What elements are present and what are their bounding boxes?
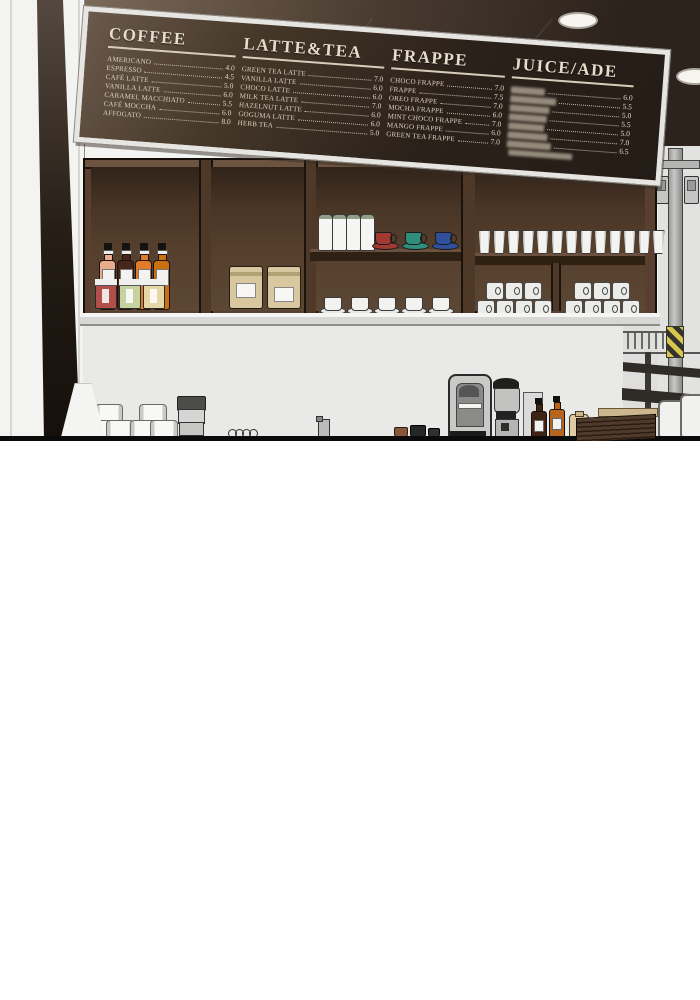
bottle-cap — [140, 243, 148, 250]
paper-cup — [580, 230, 593, 254]
menu-section-coffee: COFFEEAMERICANO4.0ESPRESSO4.5CAFÉ LATTE5… — [101, 24, 237, 148]
mug — [574, 282, 592, 300]
cup-body — [378, 297, 396, 311]
menu-section-title: LATTE&TEA — [243, 34, 386, 65]
cup-handle — [450, 234, 457, 243]
menu-section-frappe: FRAPPECHOCO FRAPPE7.0FRAPPE7.5OREO FRAPP… — [384, 45, 506, 168]
pole-box — [684, 176, 699, 204]
paper-cup — [638, 230, 651, 254]
blank-area — [0, 441, 700, 1000]
coffee-grinder — [492, 378, 522, 437]
hazard-stripes — [666, 326, 684, 358]
cabinet-section-mugs — [475, 167, 645, 311]
tea-cup — [432, 230, 458, 250]
ceiling-light — [676, 68, 700, 85]
street-fence — [620, 331, 666, 349]
wall-panel-line — [10, 0, 12, 441]
paper-cup — [551, 230, 564, 254]
pitcher-stack — [176, 396, 206, 437]
bottle-label — [552, 418, 562, 430]
cup-handle — [390, 234, 397, 243]
menu-dotted-leader — [276, 127, 367, 135]
bottle-cap — [122, 243, 130, 250]
milk-bottle-row — [318, 214, 374, 251]
mug — [593, 282, 611, 300]
mug-row — [486, 282, 552, 300]
street-curb-line — [618, 352, 700, 354]
mug — [505, 282, 523, 300]
menu-section-juice-ade: JUICE/ADE6.05.55.05.55.07.06.5 — [505, 54, 635, 178]
counter-syrup-bottle — [549, 396, 564, 437]
cabinet-divider — [551, 263, 561, 311]
coffee-bag-row — [229, 266, 301, 309]
tea-cup — [402, 230, 428, 250]
paper-cup — [493, 230, 506, 254]
cafe-scene: COFFEEAMERICANO4.0ESPRESSO4.5CAFÉ LATTE5… — [0, 0, 700, 441]
paper-cup — [609, 230, 622, 254]
paper-cup — [652, 230, 665, 254]
mug — [486, 282, 504, 300]
paper-cup — [507, 230, 520, 254]
cabinet-section-bags — [211, 167, 304, 311]
cup-body — [405, 297, 423, 311]
coffee-bag — [267, 266, 301, 309]
cup-handle — [420, 234, 427, 243]
cup-body — [351, 297, 369, 311]
menu-dotted-leader — [458, 140, 488, 143]
menu-item-price: 7.0 — [490, 137, 500, 147]
coffee-bag — [229, 266, 263, 309]
ceiling-light — [558, 12, 598, 29]
cup-body — [432, 297, 450, 311]
machine-dome — [459, 385, 479, 397]
bottle-cap — [104, 243, 112, 250]
grinder-window — [501, 423, 509, 431]
milk-bottle — [332, 214, 347, 251]
cabinet-ledge — [80, 313, 660, 326]
paper-cup-row — [478, 230, 665, 254]
paper-cup — [478, 230, 491, 254]
bottle-label — [534, 420, 544, 432]
ingredient-jar — [143, 279, 165, 309]
glass-stack — [130, 404, 178, 438]
paper-cup — [623, 230, 636, 254]
tray-stack — [576, 414, 656, 441]
menu-dotted-leader — [144, 117, 218, 124]
ingredient-jar — [95, 279, 117, 309]
bottle-cap — [158, 243, 166, 250]
mug-row — [574, 282, 640, 300]
menu-item-price: 5.0 — [370, 128, 380, 138]
pitcher-segment — [179, 422, 204, 436]
paper-cup — [565, 230, 578, 254]
menu-item-price: 6.5 — [619, 147, 629, 157]
mug — [524, 282, 542, 300]
chair — [680, 394, 700, 440]
mug — [612, 282, 630, 300]
ingredient-jar — [119, 279, 141, 309]
menu-item-name: HERB TEA — [237, 119, 273, 130]
espresso-machine — [448, 374, 492, 441]
paper-cup — [522, 230, 535, 254]
milk-bottle — [318, 214, 333, 251]
tea-cup-row — [372, 230, 458, 250]
pole-crossarm — [656, 160, 700, 169]
milk-bottle — [346, 214, 361, 251]
menu-item-name: AFFOGATO — [103, 109, 142, 120]
jar-row — [95, 279, 165, 309]
machine-slot — [458, 403, 482, 409]
wall-cabinet — [83, 158, 657, 315]
cabinet-section-cups — [316, 167, 461, 311]
paper-cup — [594, 230, 607, 254]
cup-body — [324, 297, 342, 311]
paper-cup — [536, 230, 549, 254]
menu-item-price: 8.0 — [221, 117, 231, 127]
menu-section-latte-tea: LATTE&TEAGREEN TEA LATTE7.0VANILLA LATTE… — [236, 34, 386, 159]
cabinet-section-syrups — [91, 167, 199, 311]
webtoon-panel: COFFEEAMERICANO4.0ESPRESSO4.5CAFÉ LATTE5… — [0, 0, 700, 1000]
counter-syrup-bottle — [531, 398, 546, 437]
tea-cup — [372, 230, 398, 250]
